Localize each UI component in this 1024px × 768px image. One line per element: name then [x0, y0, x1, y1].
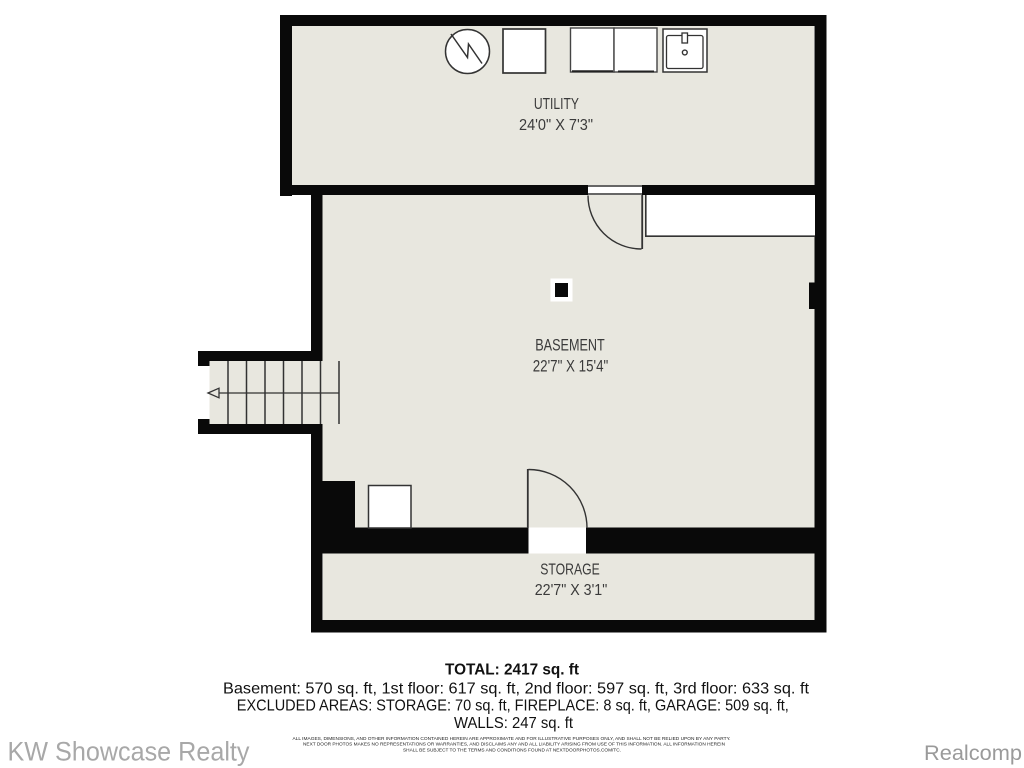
svg-text:BASEMENT: BASEMENT — [535, 337, 605, 355]
svg-text:KW Showcase Realty: KW Showcase Realty — [8, 737, 250, 767]
svg-text:ALL IMAGES, DIMENSIONS, AND OT: ALL IMAGES, DIMENSIONS, AND OTHER INFORM… — [293, 736, 731, 741]
svg-text:Basement: 570 sq. ft, 1st floo: Basement: 570 sq. ft, 1st floor: 617 sq.… — [223, 681, 810, 698]
svg-text:UTILITY: UTILITY — [534, 96, 579, 113]
svg-text:24'0" X 7'3": 24'0" X 7'3" — [519, 117, 593, 134]
svg-text:22'7" X 3'1": 22'7" X 3'1" — [535, 582, 608, 599]
svg-text:STORAGE: STORAGE — [540, 562, 600, 579]
svg-text:Realcomp: Realcomp — [924, 742, 1022, 765]
svg-text:WALLS: 247 sq. ft: WALLS: 247 sq. ft — [454, 715, 574, 732]
svg-text:SHALL BE SUBJECT TO THE TERMS: SHALL BE SUBJECT TO THE TERMS AND CONDIT… — [403, 747, 621, 752]
svg-text:NEXT DOOR PHOTOS MAKES NO REPR: NEXT DOOR PHOTOS MAKES NO REPRESENTATION… — [303, 741, 725, 746]
svg-text:TOTAL: 2417 sq. ft: TOTAL: 2417 sq. ft — [445, 662, 580, 679]
svg-text:EXCLUDED AREAS: STORAGE: 70 sq: EXCLUDED AREAS: STORAGE: 70 sq. ft, FIRE… — [237, 697, 789, 714]
svg-text:22'7" X 15'4": 22'7" X 15'4" — [533, 358, 609, 376]
